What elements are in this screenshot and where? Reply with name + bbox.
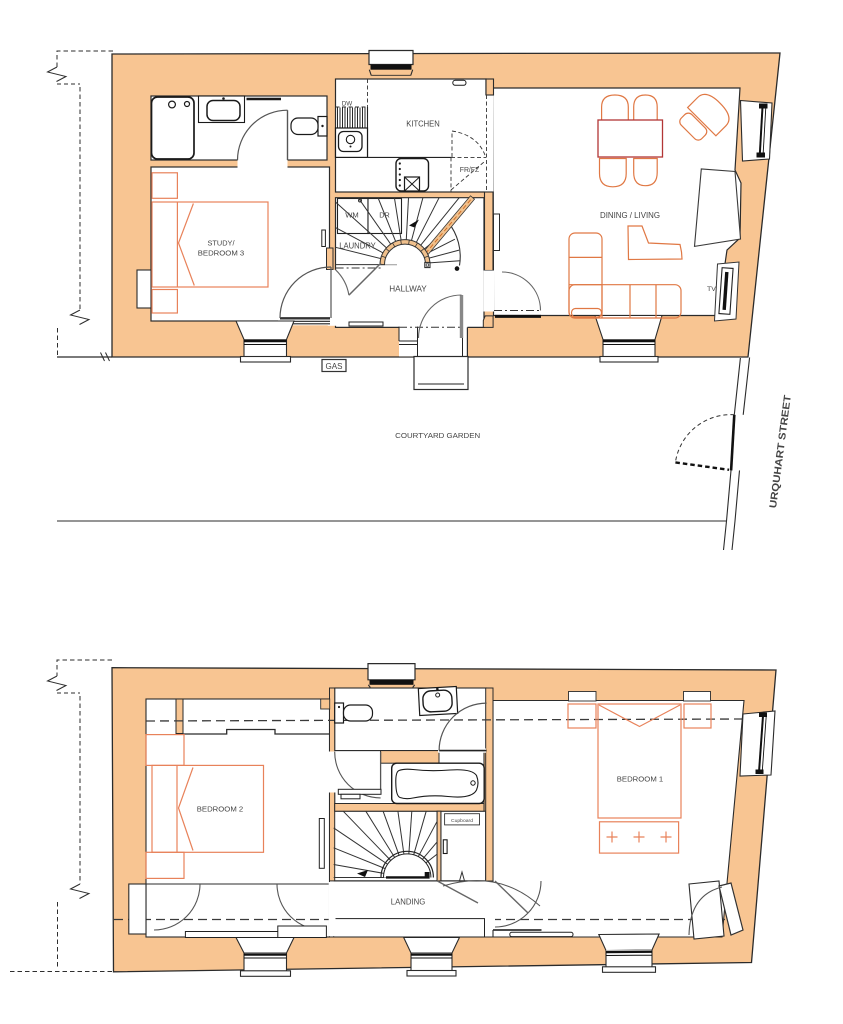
svg-text:LANDING: LANDING	[391, 898, 426, 907]
svg-text:BEDROOM 1: BEDROOM 1	[617, 775, 664, 784]
svg-text:HALLWAY: HALLWAY	[389, 285, 427, 294]
svg-text:Cupboard: Cupboard	[451, 818, 473, 823]
svg-text:TV: TV	[707, 286, 717, 293]
svg-text:LAUNDRY: LAUNDRY	[339, 242, 376, 251]
svg-text:BEDROOM 2: BEDROOM 2	[197, 805, 244, 814]
svg-text:DW: DW	[342, 101, 353, 108]
svg-text:DR: DR	[379, 211, 390, 220]
svg-text:STUDY/: STUDY/	[208, 239, 236, 248]
svg-text:WM: WM	[345, 211, 359, 220]
svg-text:BEDROOM 3: BEDROOM 3	[198, 249, 245, 258]
svg-text:KITCHEN: KITCHEN	[406, 120, 440, 129]
svg-text:FR/FZ: FR/FZ	[460, 167, 480, 174]
svg-text:GAS: GAS	[326, 362, 343, 371]
svg-text:DINING / LIVING: DINING / LIVING	[600, 211, 660, 220]
svg-text:COURTYARD GARDEN: COURTYARD GARDEN	[395, 431, 480, 440]
